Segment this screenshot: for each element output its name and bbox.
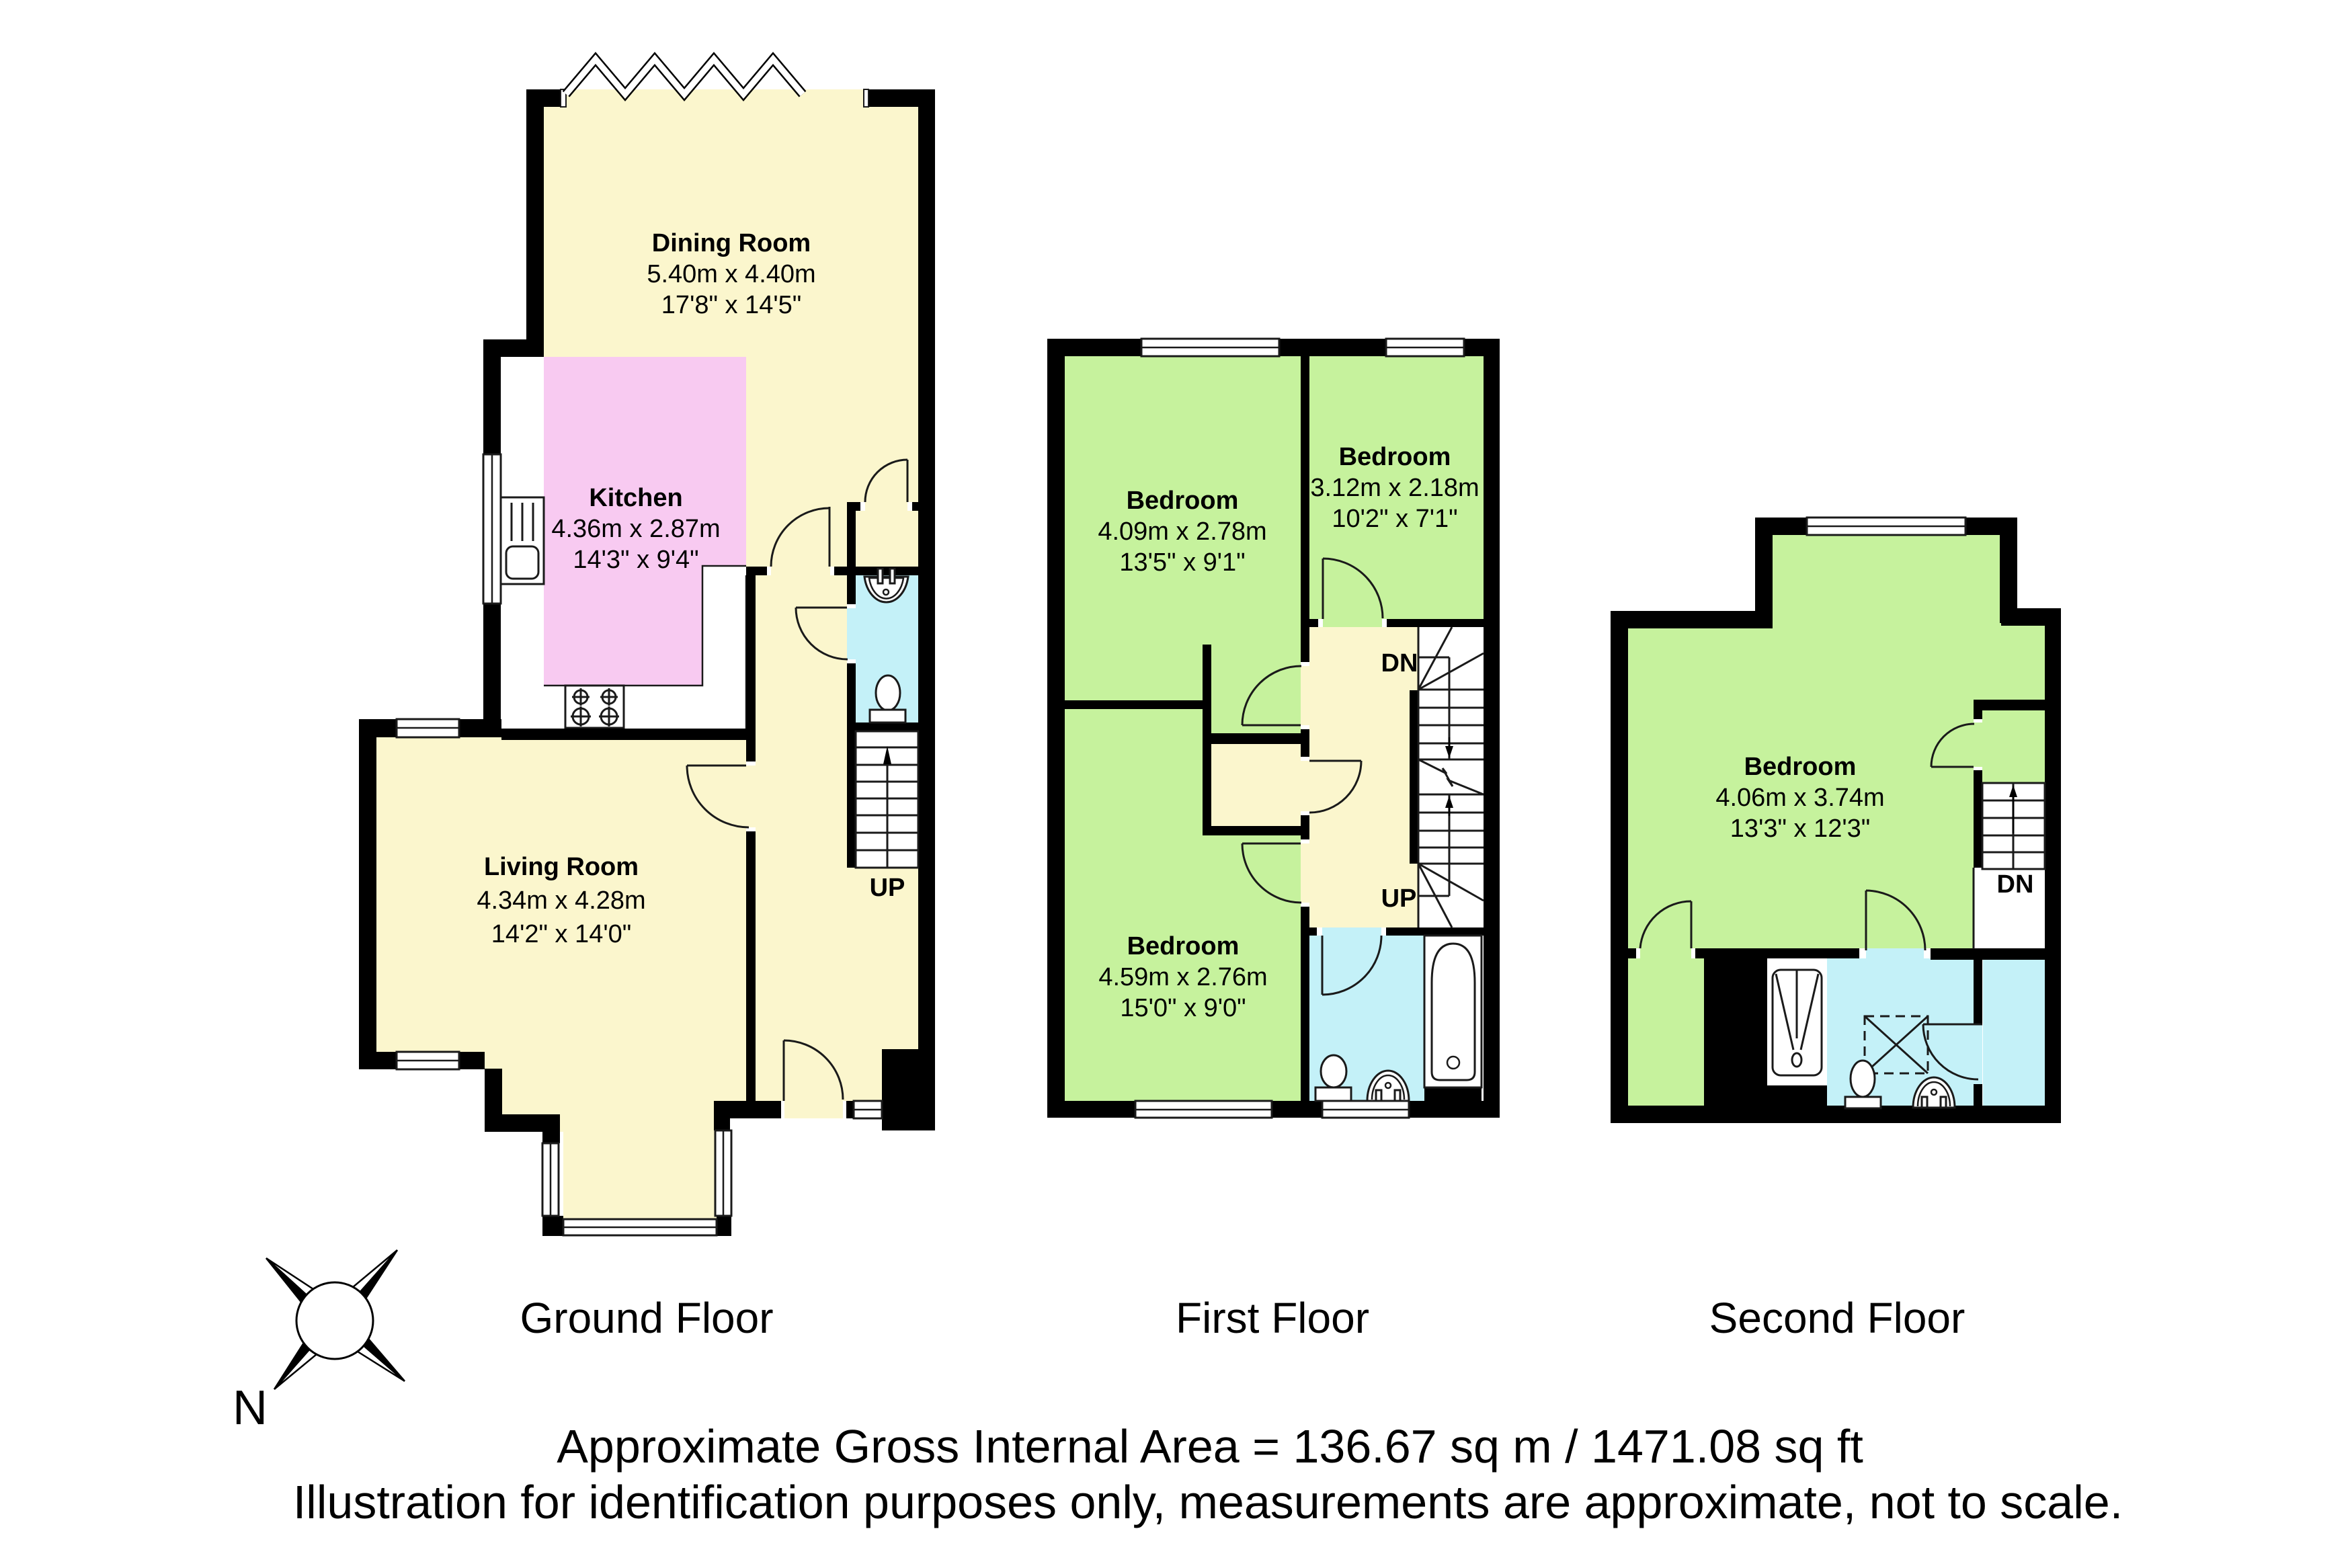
svg-text:15'0" x 9'0": 15'0" x 9'0" [1120, 994, 1246, 1022]
svg-text:3.12m x 2.18m: 3.12m x 2.18m [1310, 474, 1479, 502]
svg-text:Dining Room: Dining Room [652, 229, 811, 257]
svg-text:Ground Floor: Ground Floor [520, 1294, 773, 1342]
svg-text:14'3" x 9'4": 14'3" x 9'4" [573, 546, 698, 574]
svg-text:DN: DN [1381, 649, 1418, 677]
svg-text:Illustration for identificatio: Illustration for identification purposes… [293, 1476, 2123, 1528]
svg-text:N: N [233, 1381, 268, 1435]
svg-text:5.40m x 4.40m: 5.40m x 4.40m [647, 260, 815, 288]
svg-text:14'2" x 14'0": 14'2" x 14'0" [491, 920, 631, 948]
svg-text:DN: DN [1997, 870, 2034, 899]
svg-text:13'3" x 12'3": 13'3" x 12'3" [1730, 815, 1870, 843]
svg-text:UP: UP [1381, 884, 1417, 913]
svg-text:First Floor: First Floor [1176, 1294, 1369, 1342]
svg-text:13'5" x 9'1": 13'5" x 9'1" [1119, 548, 1245, 577]
svg-text:4.59m x 2.76m: 4.59m x 2.76m [1098, 963, 1267, 991]
svg-text:Second Floor: Second Floor [1709, 1294, 1965, 1342]
svg-text:17'8" x 14'5": 17'8" x 14'5" [661, 291, 801, 319]
svg-text:Bedroom: Bedroom [1127, 932, 1240, 960]
svg-text:UP: UP [870, 874, 905, 902]
svg-text:Bedroom: Bedroom [1127, 487, 1239, 515]
svg-text:4.34m x 4.28m: 4.34m x 4.28m [477, 886, 645, 915]
svg-text:4.09m x 2.78m: 4.09m x 2.78m [1098, 518, 1266, 546]
svg-text:Approximate Gross Internal Are: Approximate Gross Internal Area = 136.67… [557, 1420, 1863, 1473]
svg-text:Living Room: Living Room [484, 853, 639, 881]
svg-text:4.36m x 2.87m: 4.36m x 2.87m [551, 515, 720, 543]
svg-text:10'2" x 7'1": 10'2" x 7'1" [1332, 505, 1457, 533]
svg-text:4.06m x 3.74m: 4.06m x 3.74m [1715, 784, 1884, 812]
svg-text:Kitchen: Kitchen [589, 484, 682, 512]
svg-text:Bedroom: Bedroom [1339, 443, 1451, 471]
svg-text:Bedroom: Bedroom [1744, 753, 1857, 781]
